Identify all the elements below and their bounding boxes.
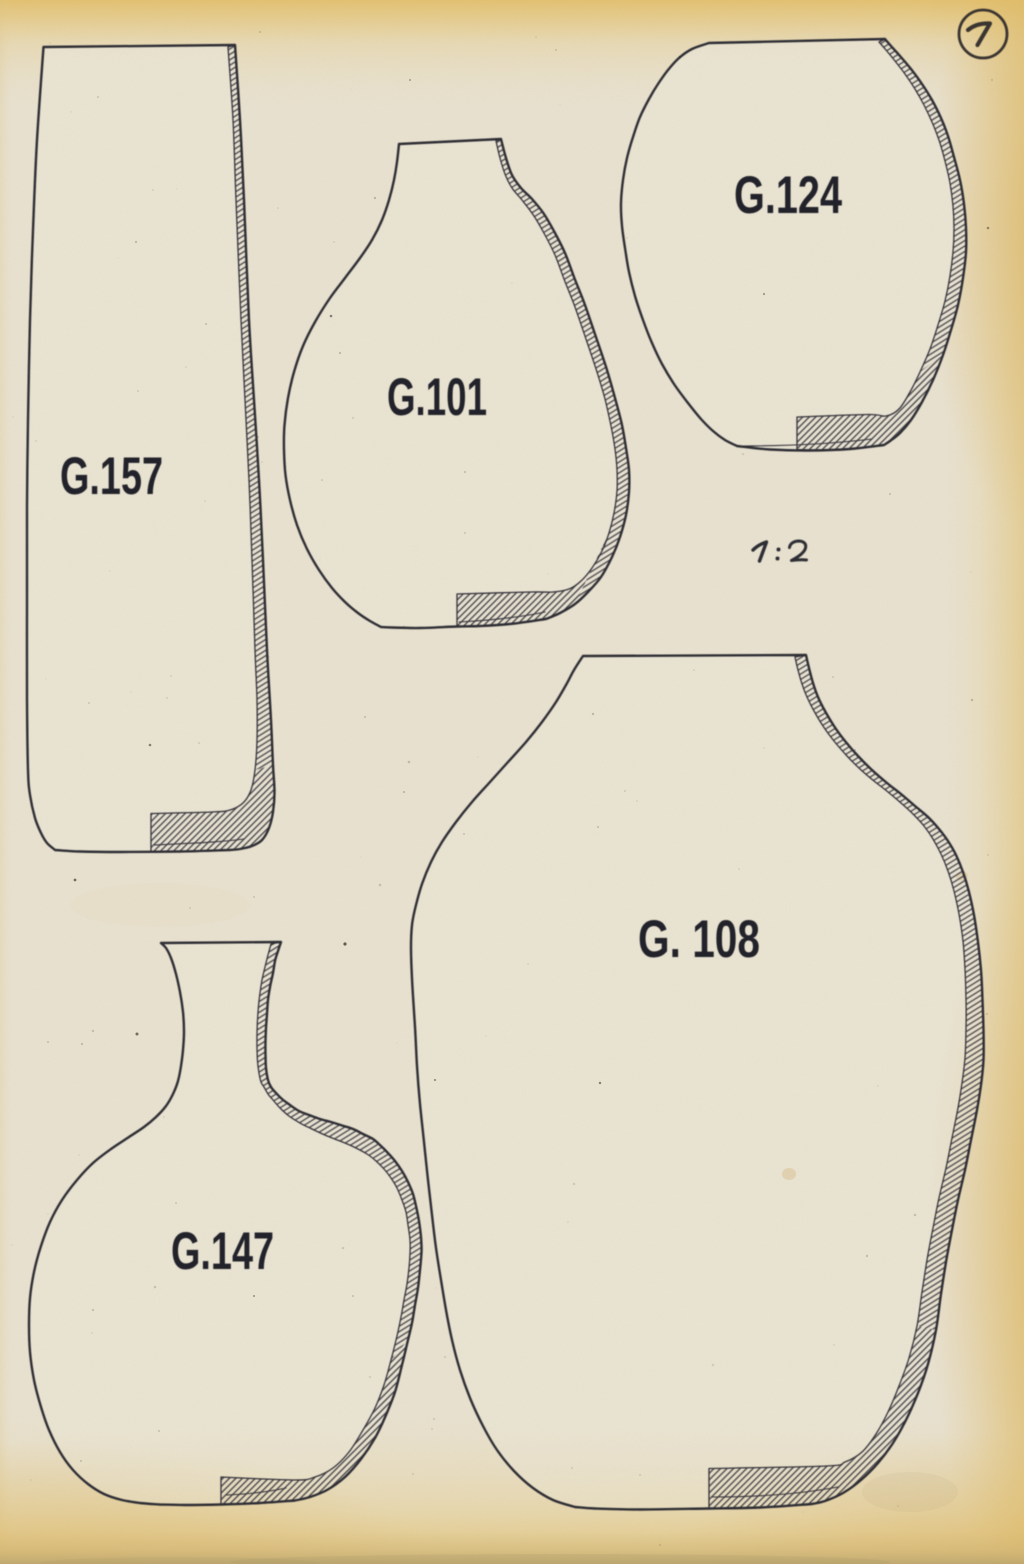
svg-text:G.124: G.124: [734, 166, 842, 225]
svg-text:G.147: G.147: [171, 1222, 274, 1281]
svg-text:G.101: G.101: [387, 368, 487, 427]
svg-text:G. 108: G. 108: [638, 910, 760, 969]
svg-text:G.157: G.157: [60, 447, 163, 506]
